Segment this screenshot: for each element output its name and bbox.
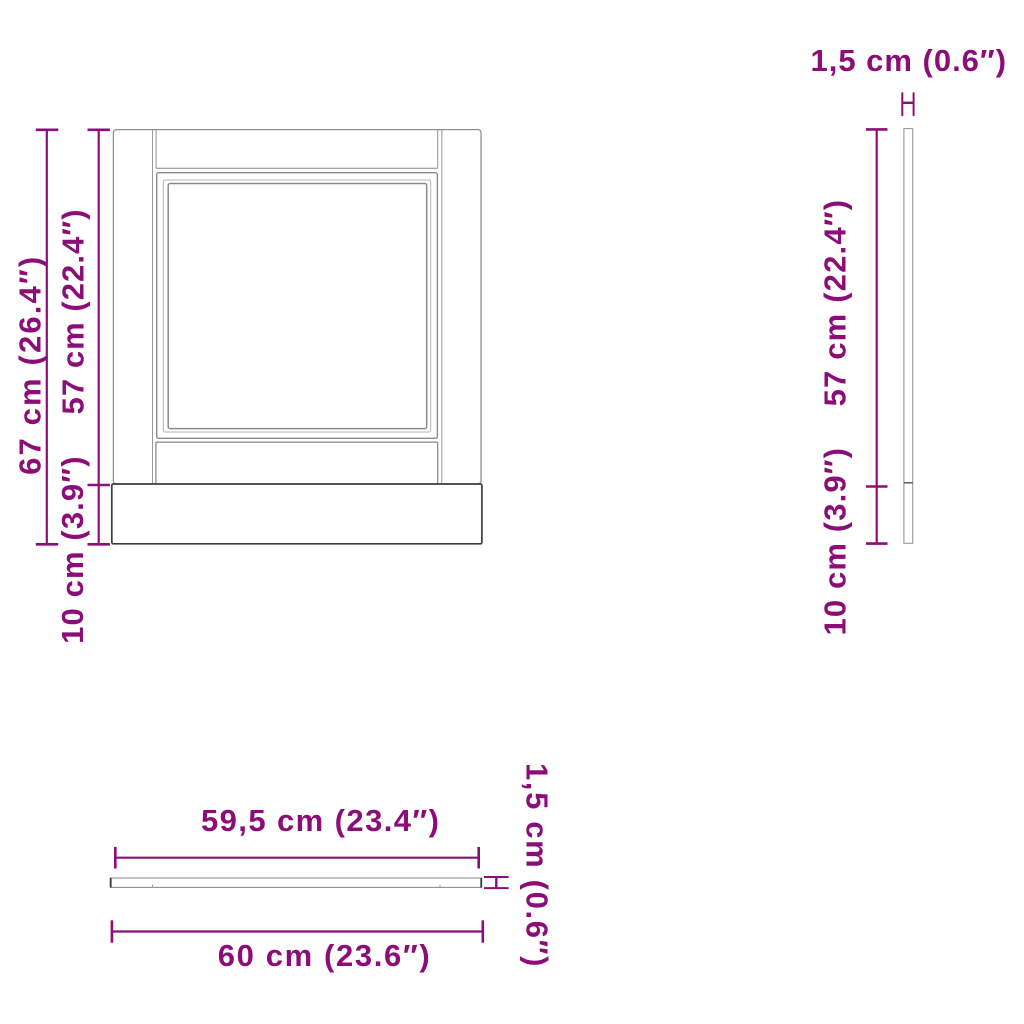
svg-text:60 cm (23.6″): 60 cm (23.6″) bbox=[218, 938, 430, 973]
svg-text:1,5 cm (0.6″): 1,5 cm (0.6″) bbox=[811, 43, 1007, 78]
svg-text:57 cm (22.4″): 57 cm (22.4″) bbox=[55, 209, 90, 414]
svg-text:59,5 cm (23.4″): 59,5 cm (23.4″) bbox=[201, 803, 439, 838]
svg-text:57 cm (22.4″): 57 cm (22.4″) bbox=[818, 200, 853, 407]
svg-text:10 cm (3.9″): 10 cm (3.9″) bbox=[817, 448, 852, 636]
svg-text:67 cm (26.4″): 67 cm (26.4″) bbox=[12, 257, 47, 475]
svg-text:1,5 cm (0.6″): 1,5 cm (0.6″) bbox=[520, 763, 555, 967]
svg-text:10 cm (3.9″): 10 cm (3.9″) bbox=[55, 456, 90, 644]
